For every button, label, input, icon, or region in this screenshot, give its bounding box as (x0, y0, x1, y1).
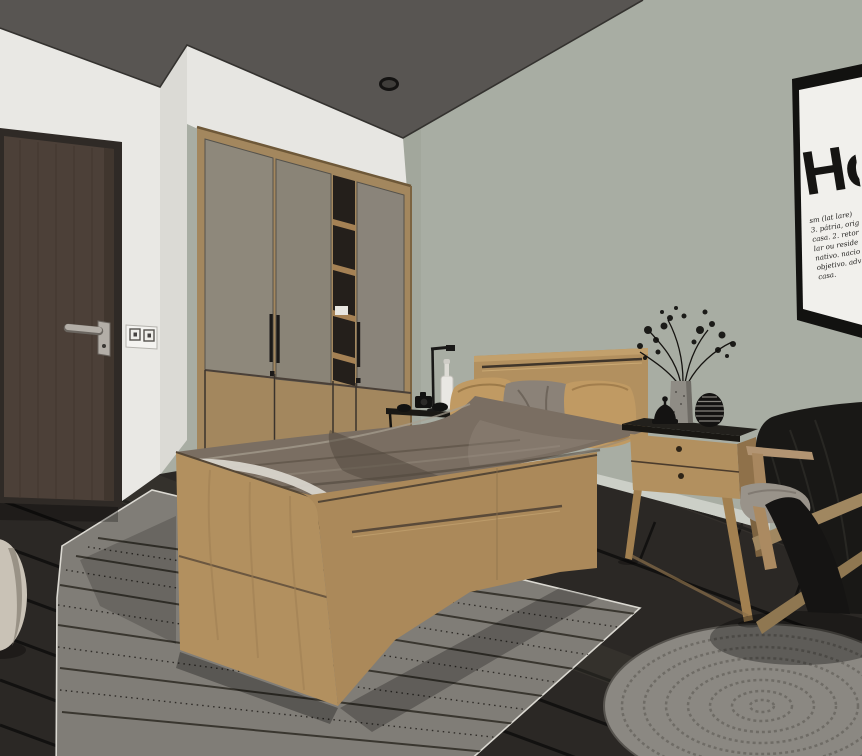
poster-title: Ho (797, 129, 862, 209)
drawer-knob-top (676, 446, 682, 452)
bedroom-render: Ho sm (lat lare) 3. pátria, orig casa. 2… (0, 0, 862, 756)
wardrobe-open-shelves (333, 175, 355, 386)
wardrobe-door-right (357, 182, 404, 392)
bedroom-scene: Ho sm (lat lare) 3. pátria, orig casa. 2… (0, 0, 862, 756)
ceiling-spotlight-icon (381, 79, 398, 90)
wardrobe-door-mid (276, 159, 331, 385)
shelf-box (335, 306, 348, 315)
wall-poster: Ho sm (lat lare) 3. pátria, orig casa. 2… (792, 64, 862, 338)
entry-door (0, 128, 122, 522)
drawer-knob-bottom (678, 473, 684, 479)
wall-column-face (160, 45, 187, 475)
light-switch (126, 325, 157, 349)
wardrobe-door-left (205, 139, 273, 378)
keyhole-icon (102, 344, 106, 348)
